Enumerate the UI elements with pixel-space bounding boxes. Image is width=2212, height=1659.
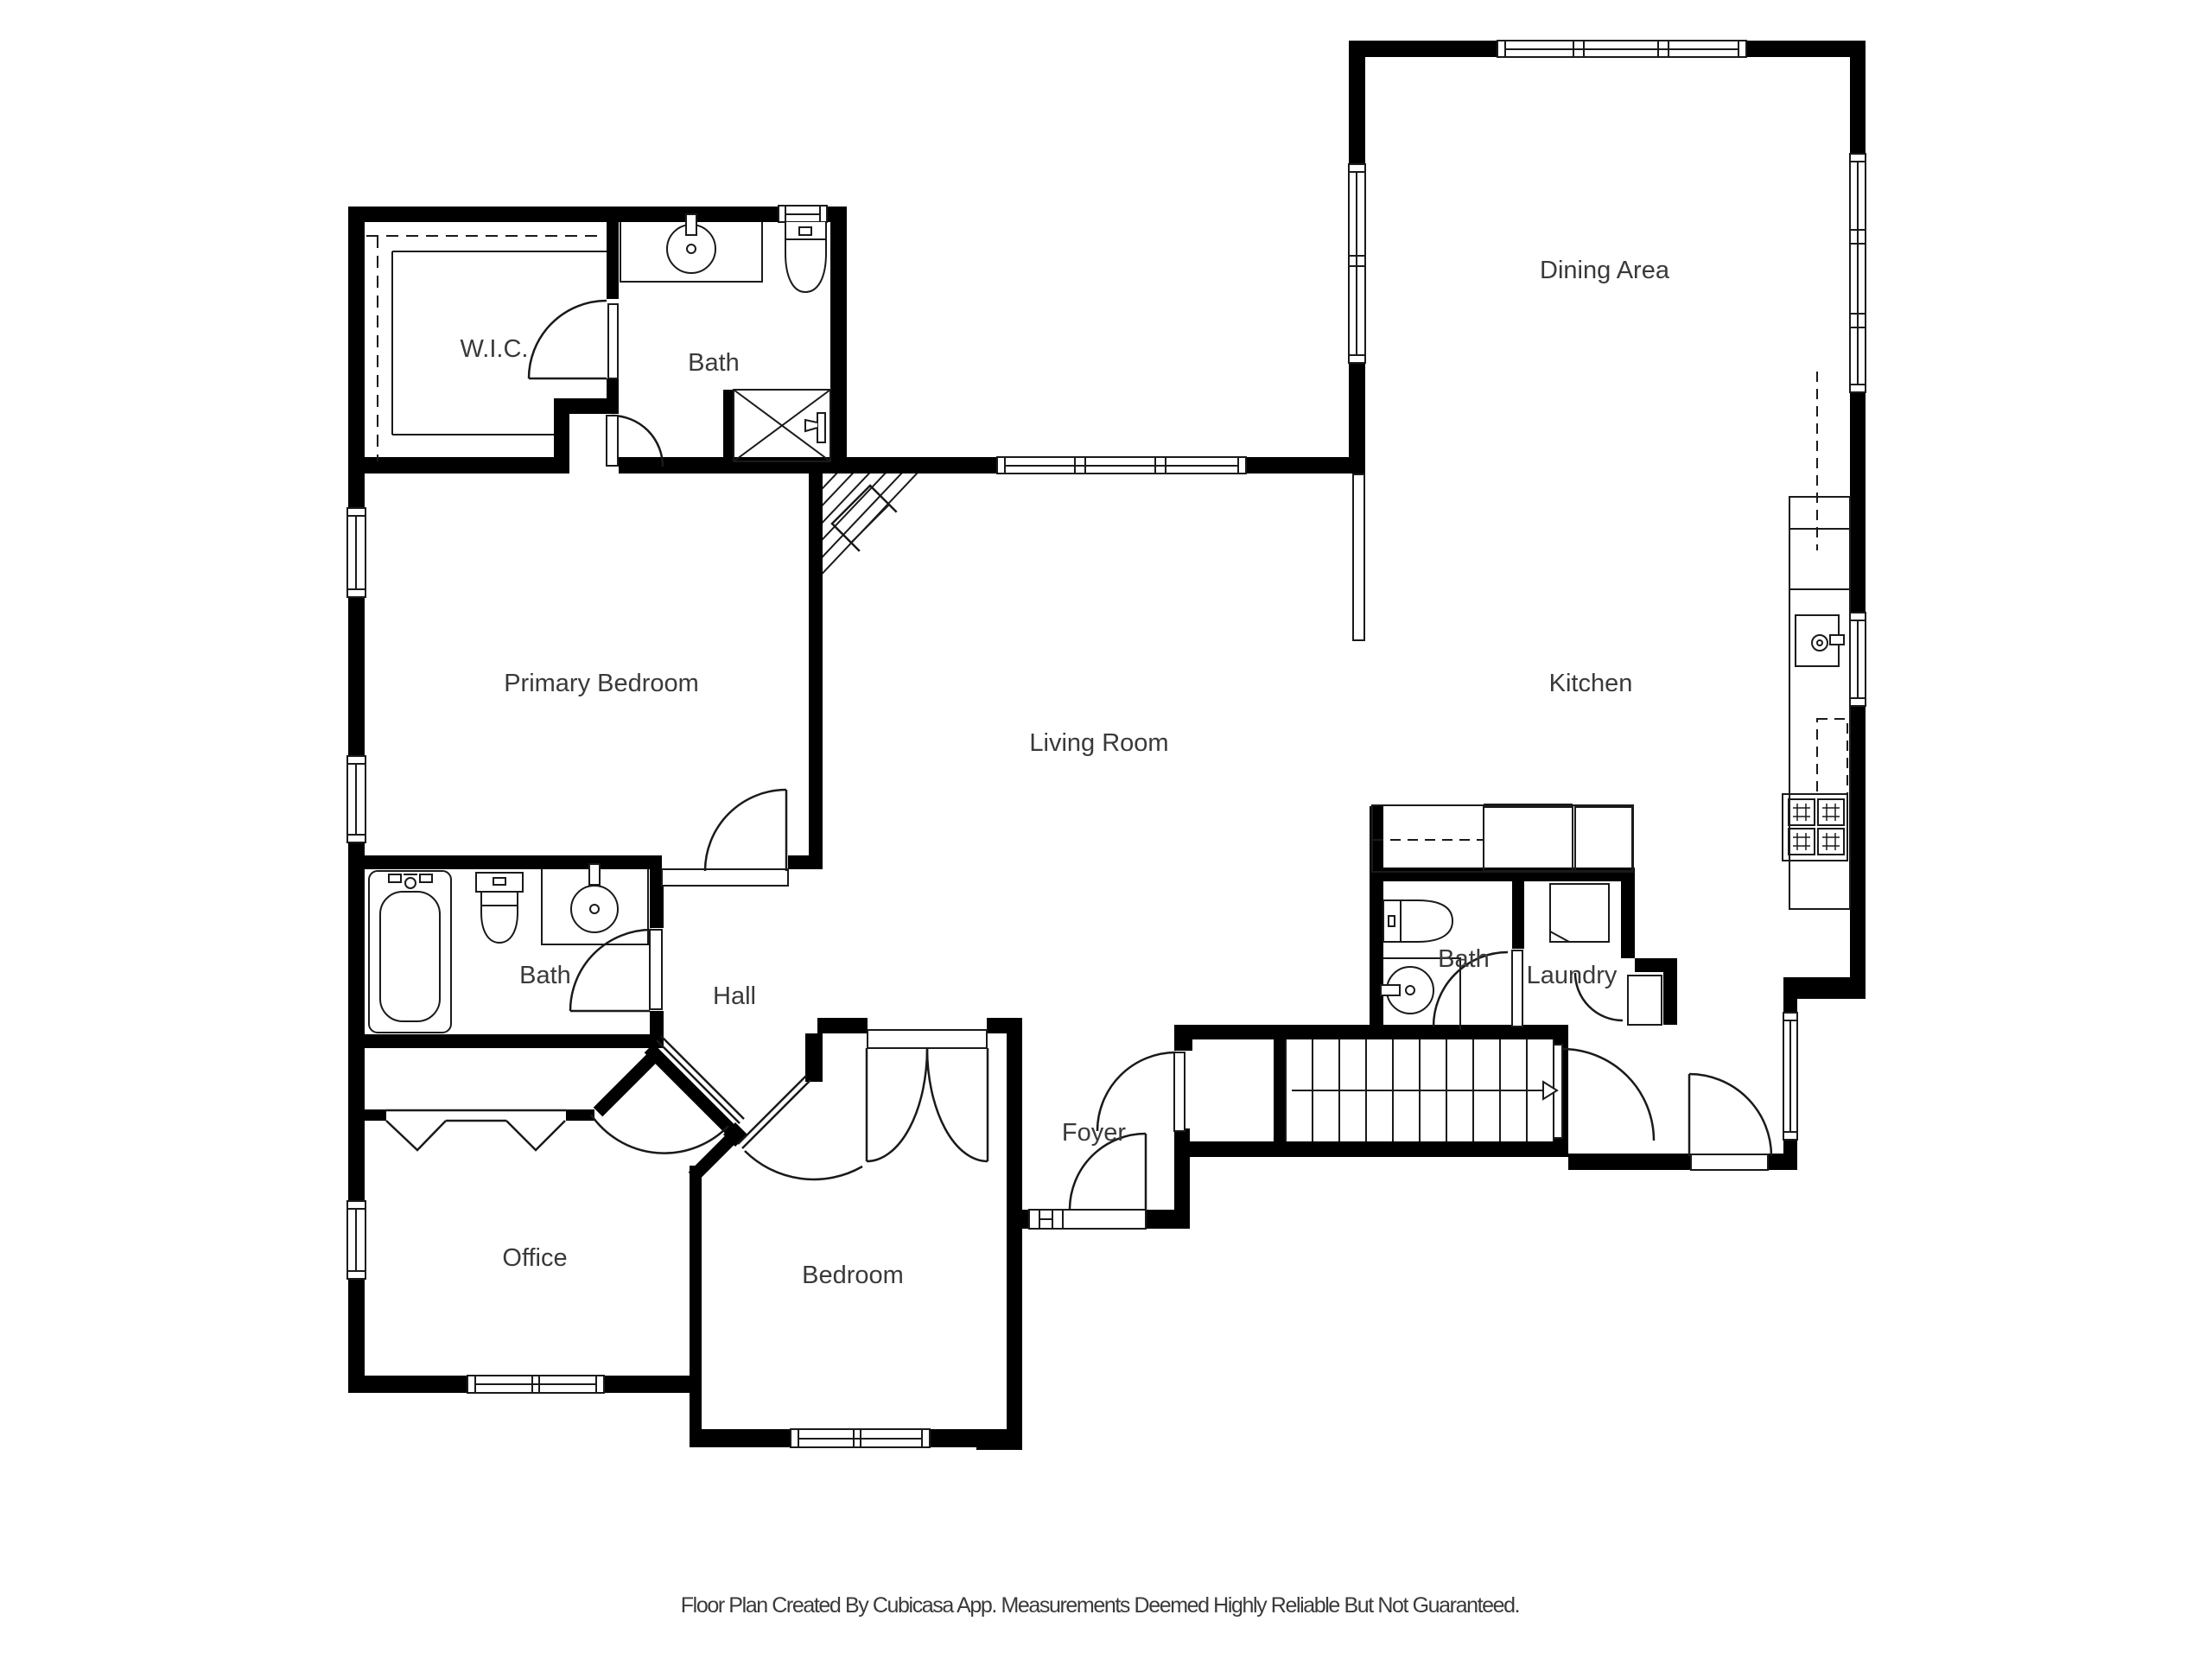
svg-text:Office: Office bbox=[502, 1244, 567, 1272]
svg-text:Bedroom: Bedroom bbox=[802, 1262, 904, 1289]
svg-text:Living Room: Living Room bbox=[1029, 729, 1168, 757]
svg-text:Bath: Bath bbox=[1438, 945, 1490, 973]
svg-text:Floor Plan Created By Cubicasa: Floor Plan Created By Cubicasa App. Meas… bbox=[681, 1593, 1519, 1618]
svg-text:Hall: Hall bbox=[713, 982, 756, 1010]
svg-text:W.I.C.: W.I.C. bbox=[461, 335, 529, 363]
svg-text:Laundry: Laundry bbox=[1527, 962, 1618, 989]
svg-text:Kitchen: Kitchen bbox=[1549, 670, 1633, 697]
svg-text:Bath: Bath bbox=[688, 349, 740, 377]
svg-text:Foyer: Foyer bbox=[1062, 1119, 1126, 1147]
svg-text:Dining Area: Dining Area bbox=[1540, 257, 1670, 284]
svg-text:Bath: Bath bbox=[519, 962, 571, 989]
svg-text:Primary Bedroom: Primary Bedroom bbox=[504, 670, 699, 697]
